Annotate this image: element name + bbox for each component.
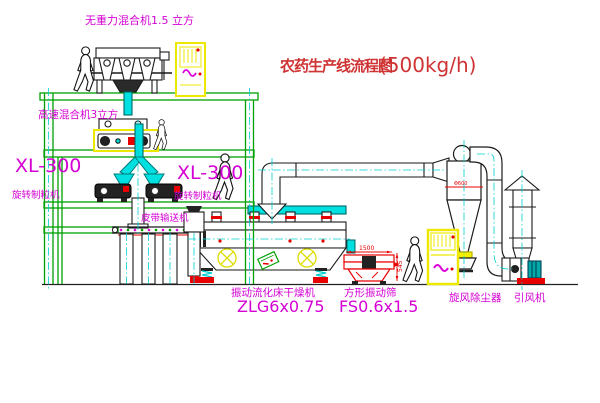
label-granulator-right-name: 旋转制粒机 [174,190,222,202]
indicator-light-icon [451,235,454,238]
label-sieve-model: FS0.6x1.5 [339,297,418,316]
cad-flowsheet-canvas: 无重力混合机1.5 立方 农药生产线流程图 (500kg/h) 高速混合机3立方… [0,0,600,403]
mixer2-discharge-pipe [135,124,143,157]
dim-sieve-width: 1500 [359,245,374,252]
worker-figure-1 [74,47,93,91]
high-speed-mixer-machine [94,119,158,157]
label-granulator-right-model: XL-300 [177,162,243,184]
flowsheet-drawing: 无重力混合机1.5 立方 农药生产线流程图 (500kg/h) 高速混合机3立方… [0,0,600,403]
spring-mount-right [313,268,328,283]
granulator-left-machine [95,184,131,202]
cyclone-outlet-elbow [454,146,471,163]
label-gravity-mixer: 无重力混合机1.5 立方 [85,13,194,27]
granulator-left-funnel [114,174,134,184]
granulator-right-funnel [144,174,164,184]
label-belt-conveyor: 皮带输送机 [141,212,189,224]
floor-slab-top [40,93,258,100]
label-dryer-model: ZLG6x0.75 [237,297,325,316]
indicator-light-icon [196,48,199,51]
worker-figure-4 [403,237,423,282]
label-high-speed-mixer: 高速混合机3立方 [38,108,118,121]
label-fan: 引风机 [514,291,546,304]
induced-draft-fan [502,258,545,284]
spring-mount-left [199,268,214,283]
control-cabinet-top [176,43,205,96]
belt-rollers [120,229,193,232]
page-title: 农药生产线流程图 [279,57,393,75]
exhaust-duct [262,163,433,204]
mixer-discharge-pipe [124,92,132,115]
label-cyclone: 旋风除尘器 [449,291,502,304]
gravity-mixer-machine [86,48,172,115]
label-granulator-left-name: 旋转制粒机 [12,189,60,201]
label-granulator-left-model: XL-300 [15,155,81,177]
page-title-capacity: (500kg/h) [379,53,476,77]
dim-cyclone: Φ600 [454,181,467,187]
fan-motor [528,261,541,278]
floor-slab-3 [44,202,254,208]
dim-sieve-height: 545 [397,260,404,272]
floor-slab-4 [44,227,118,233]
y-chute [114,157,164,184]
control-cabinet-bottom [428,230,458,284]
